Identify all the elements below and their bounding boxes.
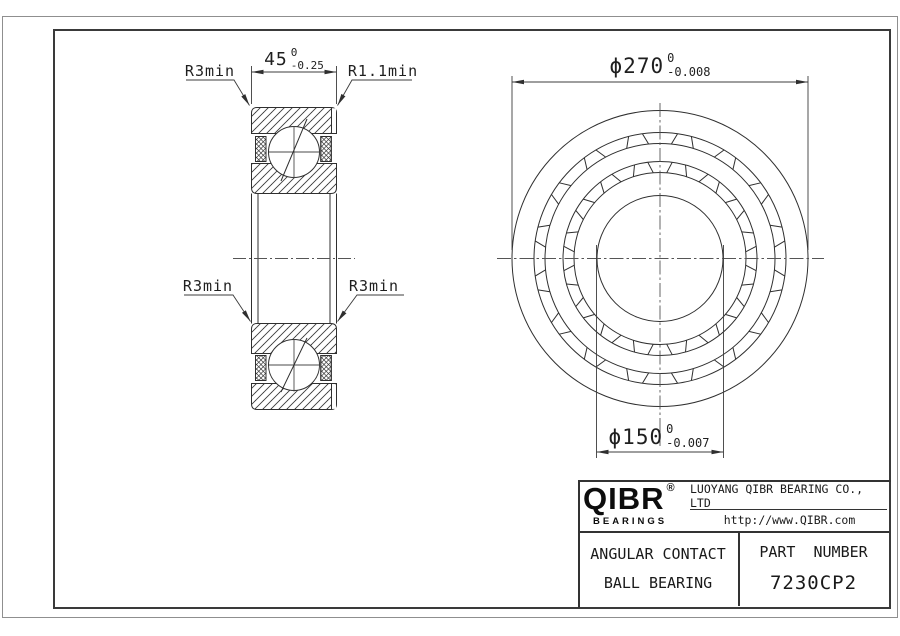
bore-diameter-label: ϕ150 0 -0.007 <box>609 423 710 451</box>
brand-logo: QIBR ® BEARINGS <box>583 483 691 530</box>
radius-note-top-left: R3min <box>185 62 235 80</box>
cross-section-view <box>233 108 355 410</box>
bore-value: 150 <box>622 425 663 449</box>
company-name: LUOYANG QIBR BEARING CO., LTD <box>690 483 889 508</box>
part-number-cell: PART NUMBER 7230CP2 <box>740 533 887 604</box>
company-website: http://www.QIBR.com <box>690 510 889 530</box>
od-value: 270 <box>623 54 664 78</box>
width-value: 45 <box>264 49 288 70</box>
width-tolerance: 0 -0.25 <box>291 47 324 72</box>
product-type-line2: BALL BEARING <box>604 574 712 592</box>
part-number-value: 7230CP2 <box>770 572 857 594</box>
logo-tagline: BEARINGS <box>593 516 691 527</box>
width-dimension-label: 45 0 -0.25 <box>264 47 324 72</box>
od-symbol: ϕ <box>610 54 624 78</box>
radius-note-mid-left: R3min <box>183 277 233 295</box>
drawing-page: R3min R1.1min R3min R3min 45 0 -0.25 ϕ27… <box>0 0 900 636</box>
radius-note-top-right: R1.1min <box>348 62 418 80</box>
od-tolerance: 0 -0.008 <box>667 52 710 80</box>
registered-trademark-icon: ® <box>667 482 675 494</box>
product-type-line1: ANGULAR CONTACT <box>590 545 725 563</box>
radius-note-mid-right: R3min <box>349 277 399 295</box>
outer-diameter-label: ϕ270 0 -0.008 <box>610 52 711 80</box>
product-type-cell: ANGULAR CONTACT BALL BEARING <box>580 533 736 604</box>
logo-text: QIBR <box>583 483 665 514</box>
bore-symbol: ϕ <box>609 425 623 449</box>
part-number-label: PART NUMBER <box>759 543 867 561</box>
bore-tolerance: 0 -0.007 <box>666 423 709 451</box>
